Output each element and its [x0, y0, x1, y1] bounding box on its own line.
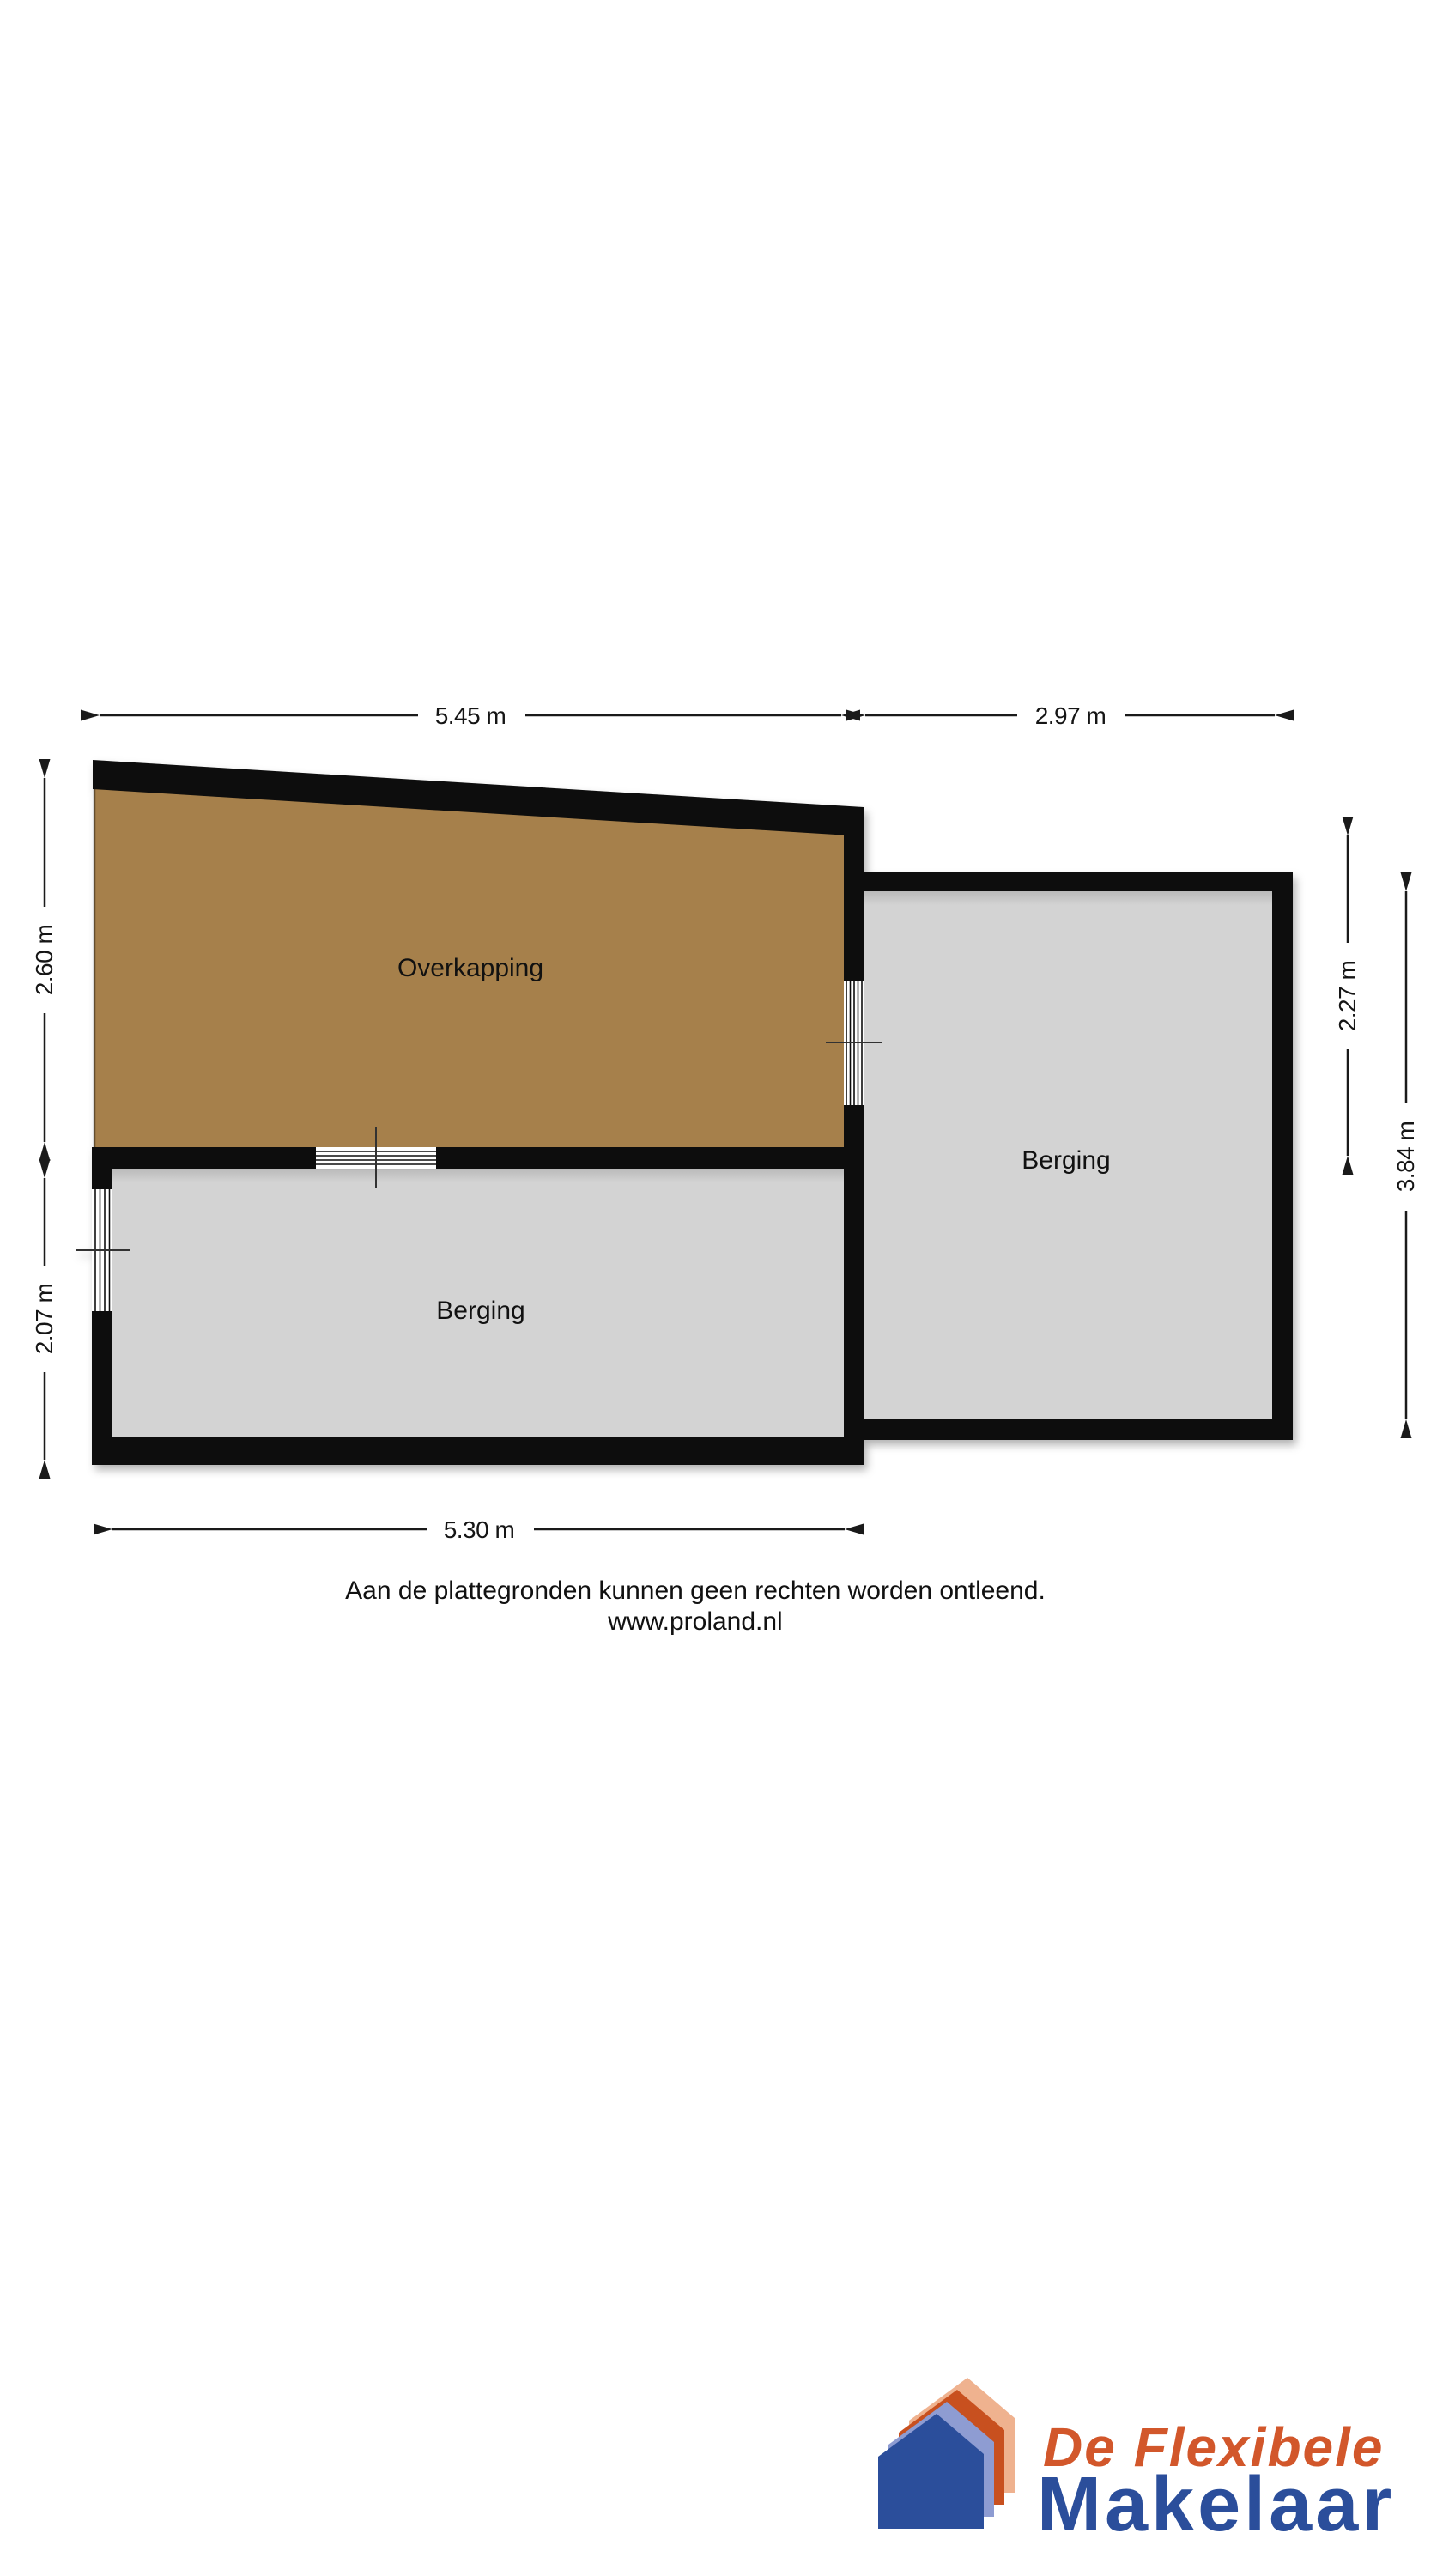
floorplan-canvas: Overkapping Berging Berging 5.45 m 2.97 …	[0, 0, 1449, 2576]
dimension-right-outer: 3.84 m	[1392, 891, 1419, 1419]
svg-text:2.60 m: 2.60 m	[31, 925, 58, 996]
disclaimer-text: Aan de plattegronden kunnen geen rechten…	[345, 1577, 1046, 1605]
room-label-berging-left: Berging	[436, 1297, 524, 1325]
dimension-left-upper: 2.60 m	[31, 778, 58, 1142]
dimension-top-right: 2.97 m	[865, 702, 1275, 729]
svg-text:3.84 m: 3.84 m	[1392, 1121, 1419, 1193]
berging-left-shade	[112, 1169, 844, 1182]
wall-bottom-left-building	[92, 1437, 864, 1465]
logo: De Flexibele Makelaar	[878, 2378, 1395, 2548]
dimension-left-lower: 2.07 m	[31, 1178, 58, 1460]
building-structure	[76, 760, 1293, 1465]
svg-text:2.27 m: 2.27 m	[1334, 961, 1361, 1032]
wall-bottom-right-building	[864, 1419, 1293, 1440]
logo-text-line2: Makelaar	[1037, 2462, 1395, 2548]
svg-text:2.97 m: 2.97 m	[1035, 702, 1106, 729]
floorplan-page: Overkapping Berging Berging 5.45 m 2.97 …	[0, 0, 1449, 2576]
svg-text:5.30 m: 5.30 m	[444, 1516, 515, 1543]
room-label-berging-right: Berging	[1022, 1146, 1110, 1175]
wall-shared	[844, 807, 864, 1440]
website-text: www.proland.nl	[607, 1607, 782, 1636]
wall-top-right-building	[864, 872, 1293, 891]
svg-text:2.07 m: 2.07 m	[31, 1284, 58, 1355]
logo-house-icon	[878, 2378, 1015, 2529]
svg-text:5.45 m: 5.45 m	[435, 702, 506, 729]
dimension-top-left: 5.45 m	[100, 702, 841, 729]
dimension-right-inner: 2.27 m	[1334, 835, 1361, 1156]
wall-middle	[92, 1147, 864, 1169]
wall-right	[1272, 872, 1293, 1440]
room-label-overkapping: Overkapping	[397, 954, 543, 982]
dimension-bottom: 5.30 m	[112, 1516, 845, 1543]
berging-right-shade	[864, 891, 1272, 905]
